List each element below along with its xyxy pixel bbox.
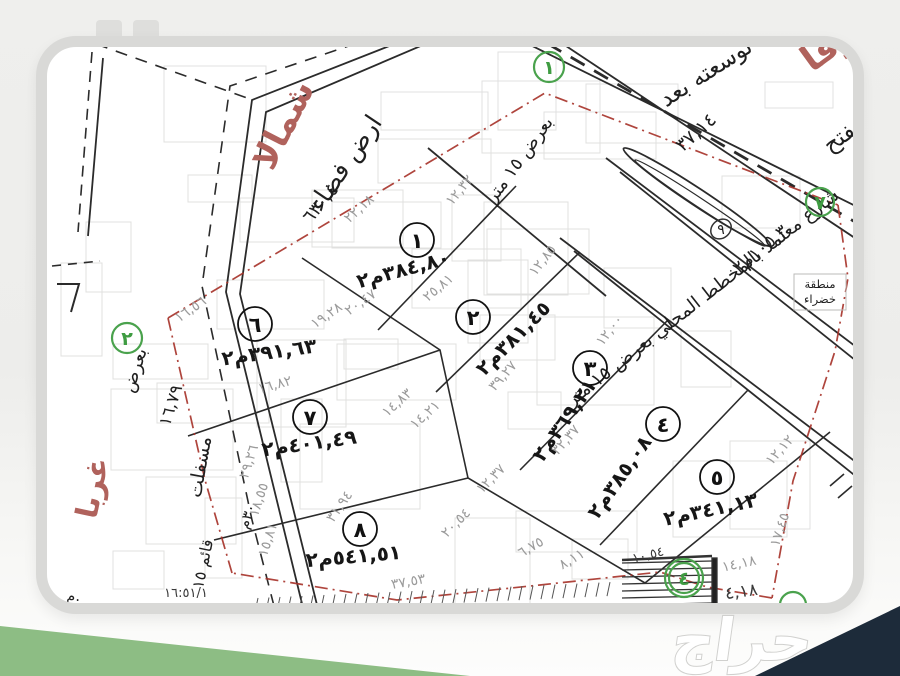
green-area-plot-id: ٩ bbox=[717, 222, 725, 238]
dimension-label: ١٤,٨٣ bbox=[379, 385, 416, 420]
direction-east-label: شرقا bbox=[793, 47, 853, 80]
plot-id: ٤ bbox=[657, 413, 670, 437]
street-width-note: بعرض ١٥ متر bbox=[481, 113, 558, 208]
edge-mark: م. bbox=[66, 587, 80, 603]
dimension-label: ١٧,٤٥ bbox=[767, 511, 793, 549]
direction-north-label: شمالا bbox=[244, 74, 322, 176]
dimension-labels: ٢٢,١٨ ١٢,٣٢ ٢٥,٨١ ١٢,٨٥ ١٢,٠٠ ٢٠,٤٧ ١٩,٢… bbox=[164, 172, 797, 603]
listing-photo-page: شمالا شرقا غربا ارض فضاء ٦٣٠,٤ توسعته بع… bbox=[0, 0, 900, 676]
dimension-label: ١٨,٥٥ bbox=[246, 481, 272, 519]
haraj-logo-text: حراج bbox=[668, 606, 817, 675]
plot-area: ٣٩١,٦٣م٢ bbox=[220, 334, 318, 371]
dimension-label: ٤,١٨ bbox=[724, 580, 759, 603]
plot-area: ٥٤١,٥١م٢ bbox=[305, 540, 402, 572]
dimension-label: ١٦:٥١/١ bbox=[164, 586, 208, 601]
dimension-label: ١٢,٨٥ bbox=[526, 242, 560, 279]
map-photo-card: شمالا شرقا غربا ارض فضاء ٦٣٠,٤ توسعته بع… bbox=[36, 36, 864, 614]
dimension-label: ١٦,٨٢ bbox=[256, 373, 293, 397]
green-marker-7: ٧ bbox=[814, 192, 826, 214]
west-road-existing-note: قائم ١٥ bbox=[188, 537, 217, 590]
dimension-label: ١٤,١٨ bbox=[721, 553, 759, 576]
dimension-label: ١٢,٣٢ bbox=[443, 172, 477, 209]
dimension-label: ٢٠,٥٤ bbox=[438, 505, 474, 541]
plot-id: ١ bbox=[411, 229, 424, 253]
dimension-label: ١٩,٢٨ bbox=[308, 299, 346, 332]
dimension-label: ٣٧,٥٣ bbox=[390, 571, 427, 593]
expansion-dim: ٣٧,١٤ bbox=[671, 109, 721, 157]
dimension-label: ٢٥,٨١ bbox=[420, 271, 457, 305]
dimension-label: ١٠,٥٤ bbox=[631, 544, 666, 566]
plot-area: ٤٠١,٤٩م٢ bbox=[260, 425, 358, 462]
green-accent-triangle bbox=[0, 626, 470, 676]
dimension-label: ١٢,٠٠ bbox=[593, 312, 627, 349]
plot-id: ٧ bbox=[304, 406, 317, 430]
expansion-note: توسعته بعد bbox=[655, 47, 757, 113]
dimension-label: ٦,٧٥ bbox=[515, 534, 546, 561]
green-marker-2: ٢ bbox=[121, 328, 133, 350]
plot-marker: ٨ ٥٤١,٥١م٢ bbox=[305, 512, 402, 572]
green-marker-4: ٤ bbox=[678, 568, 690, 590]
green-area-size: ١٠٥,٣م٢ bbox=[729, 221, 793, 279]
dimension-label: ١٥,٨١ bbox=[255, 521, 281, 559]
green-area-label-1: منطقة bbox=[804, 277, 835, 291]
direction-west-label: غربا bbox=[70, 454, 117, 522]
opens-note: يفتح bbox=[818, 114, 853, 158]
haraj-logo-watermark: حراج bbox=[580, 602, 900, 676]
plot-id: ٢ bbox=[467, 306, 480, 330]
green-marker-1: ١ bbox=[543, 57, 555, 79]
plot-id: ٦ bbox=[249, 313, 262, 337]
green-area-group: ٩ ١٠٥,٣م٢ منطقة خضراء bbox=[707, 215, 846, 310]
dimension-label: ٢٩,٢٦ bbox=[236, 443, 262, 481]
plot-marker: ٦ ٣٩١,٦٣م٢ bbox=[220, 307, 318, 371]
survey-map-image: شمالا شرقا غربا ارض فضاء ٦٣٠,٤ توسعته بع… bbox=[47, 47, 853, 603]
plot-id: ٥ bbox=[711, 466, 724, 490]
plot-marker: ٥ ٣٤١,١٣م٢ bbox=[661, 460, 759, 531]
plot-area: ٣٤١,١٣م٢ bbox=[661, 487, 759, 530]
dimension-label: ١٤,٢١ bbox=[407, 398, 443, 433]
plot-id: ٨ bbox=[354, 518, 367, 542]
green-area-label-2: خضراء bbox=[804, 292, 836, 307]
plot-area: ٣٨٥,٠٨م٢ bbox=[582, 431, 656, 523]
west-road-surface-label: مسفلت bbox=[184, 435, 216, 500]
